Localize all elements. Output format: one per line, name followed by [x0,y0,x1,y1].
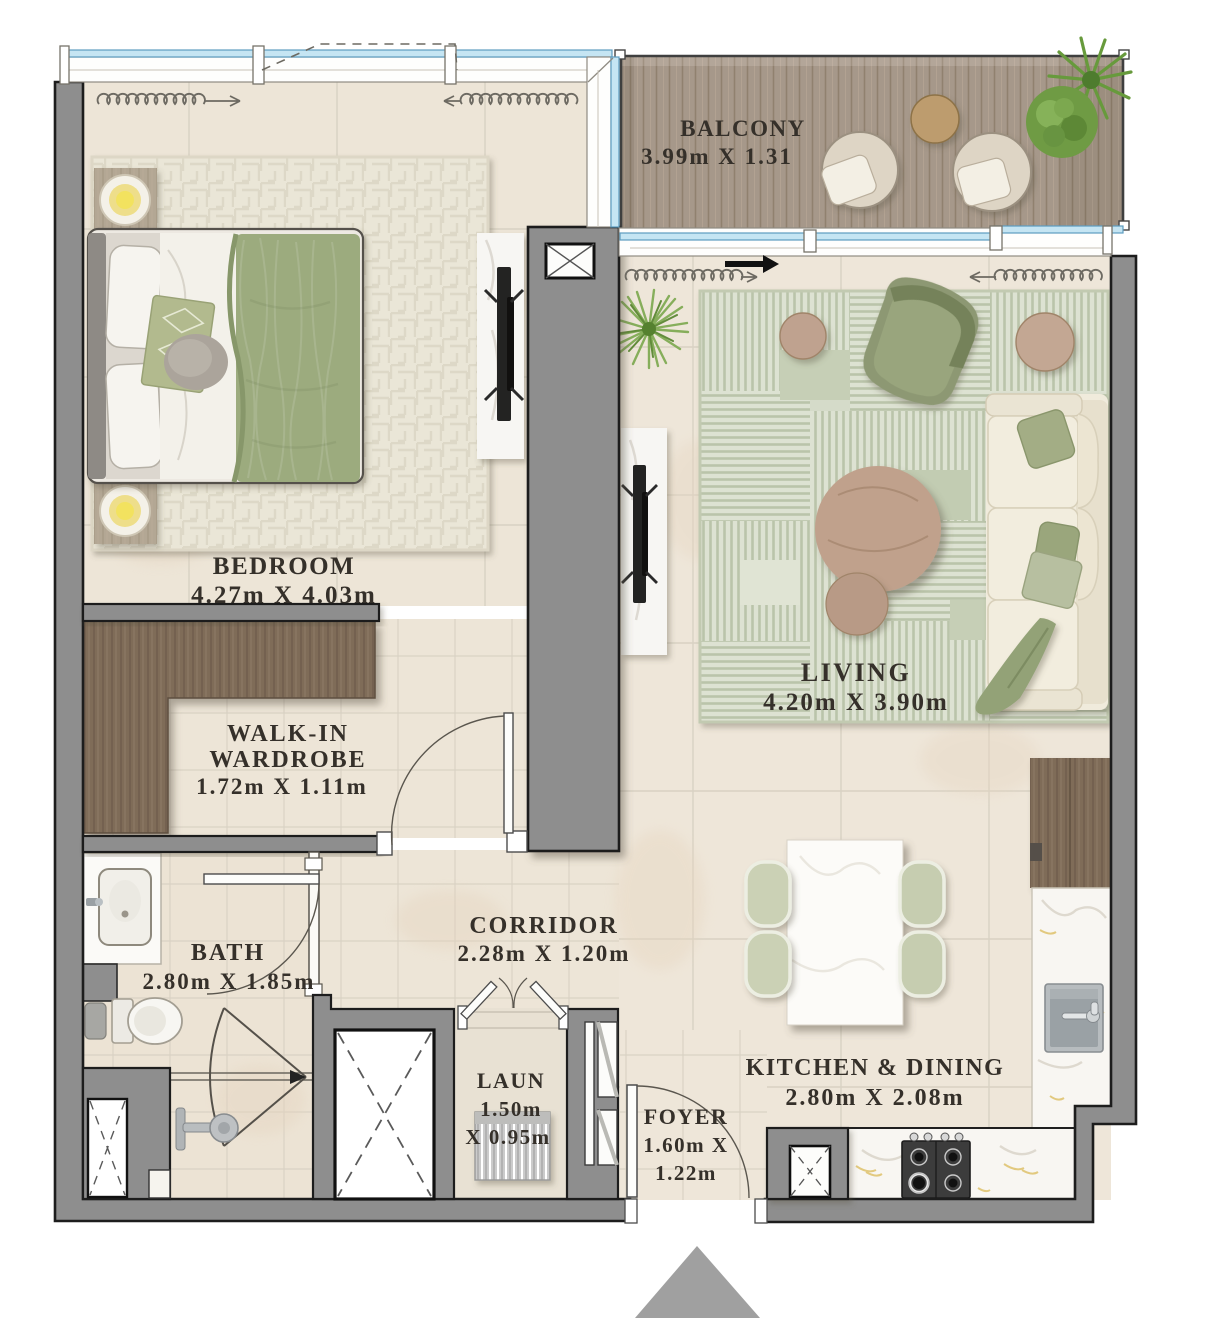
svg-text:4.27m X 4.03m: 4.27m X 4.03m [191,582,377,609]
svg-text:CORRIDOR: CORRIDOR [469,913,618,939]
svg-text:4.20m X 3.90m: 4.20m X 3.90m [763,689,949,716]
svg-text:2.80m X 2.08m: 2.80m X 2.08m [785,1085,964,1111]
svg-text:WALK-IN: WALK-IN [227,721,349,747]
svg-text:2.28m X 1.20m: 2.28m X 1.20m [458,941,631,966]
svg-text:1.50m: 1.50m [480,1097,542,1121]
svg-text:KITCHEN & DINING: KITCHEN & DINING [746,1055,1005,1081]
svg-text:WARDROBE: WARDROBE [209,747,366,773]
svg-text:3.99m X 1.31: 3.99m X 1.31 [641,144,793,169]
svg-text:1.72m X 1.11m: 1.72m X 1.11m [196,774,368,799]
svg-text:BATH: BATH [191,940,265,966]
svg-text:2.80m X 1.85m: 2.80m X 1.85m [143,969,316,994]
svg-text:FOYER: FOYER [644,1104,729,1129]
svg-text:X 0.95m: X 0.95m [465,1125,550,1149]
svg-text:LIVING: LIVING [801,658,911,687]
svg-text:BALCONY: BALCONY [680,116,806,141]
svg-text:1.60m X: 1.60m X [643,1133,728,1157]
svg-text:BEDROOM: BEDROOM [213,553,355,580]
svg-text:1.22m: 1.22m [655,1161,717,1185]
svg-text:LAUN: LAUN [477,1068,545,1093]
